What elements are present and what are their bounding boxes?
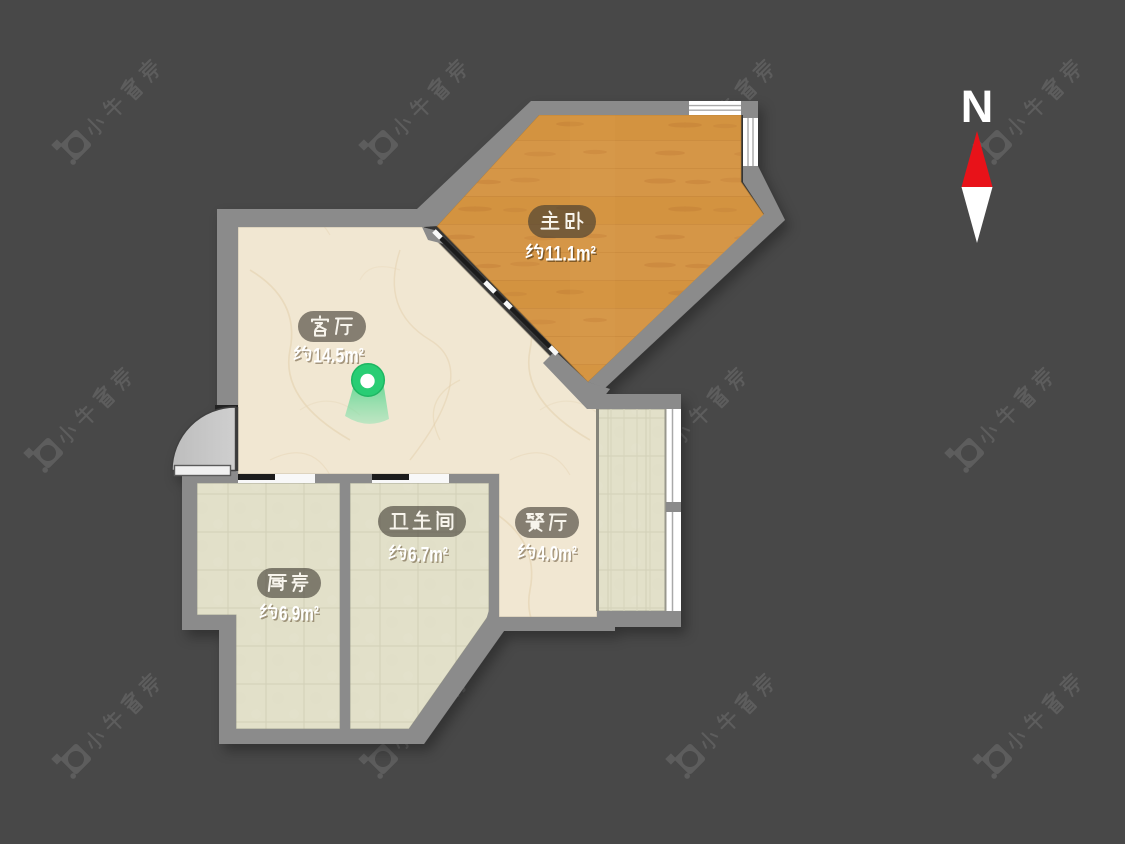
svg-text:6.7m²: 6.7m² <box>408 544 448 567</box>
svg-text:14.5m²: 14.5m² <box>313 345 364 368</box>
svg-text:N: N <box>961 81 994 132</box>
svg-text:4.0m²: 4.0m² <box>537 543 577 566</box>
svg-text:11.1m²: 11.1m² <box>545 243 596 266</box>
svg-text:6.9m²: 6.9m² <box>279 603 319 626</box>
